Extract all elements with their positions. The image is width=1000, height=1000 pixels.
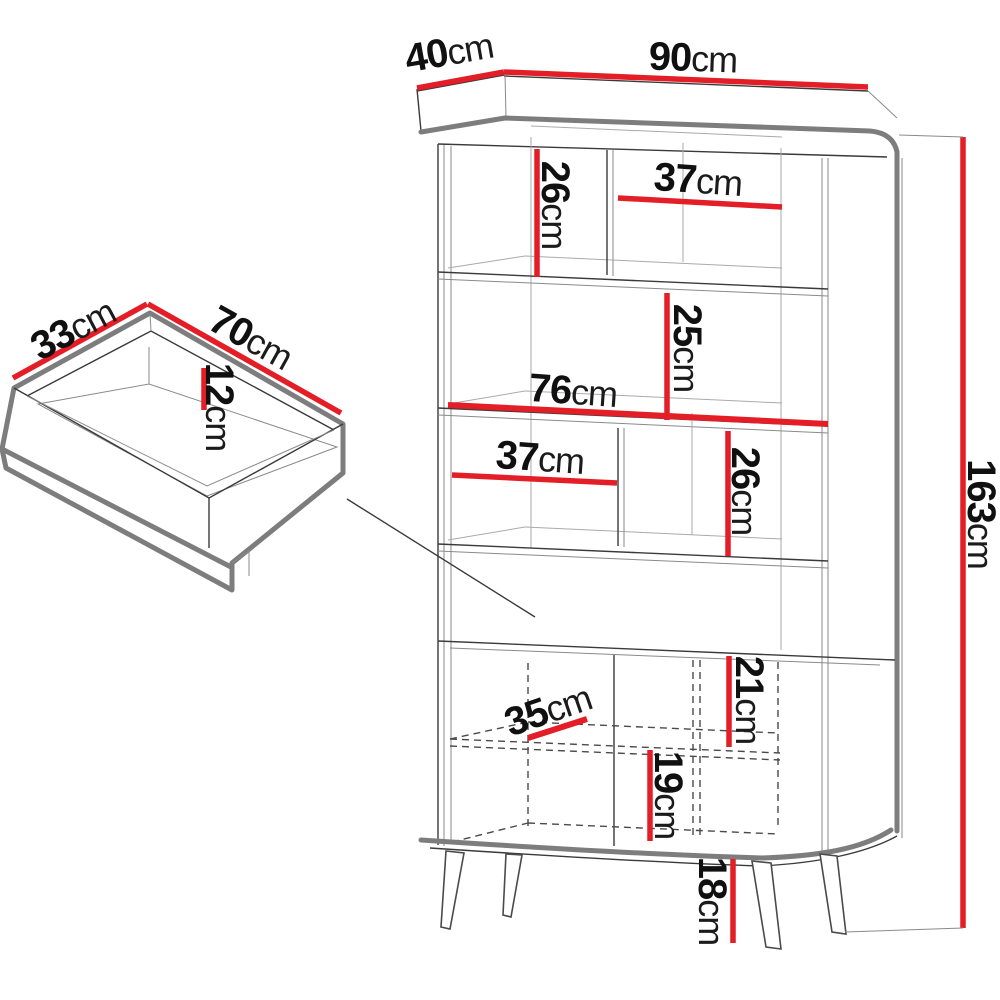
dim-label-90cm: 90cm: [648, 34, 738, 81]
dim-label-26cm-mid: 26cm: [723, 447, 767, 536]
dim-label-163cm: 163cm: [959, 459, 1000, 569]
leg-front-right: [752, 861, 781, 949]
leg-front-left: [441, 851, 464, 929]
dim-label-37cm-top: 37cm: [652, 155, 743, 205]
dim-label-21cm: 21cm: [727, 656, 771, 745]
dim-label-12cm: 12cm: [197, 363, 241, 452]
dim-label-26cm-top: 26cm: [533, 161, 577, 250]
leg-back-left: [503, 854, 522, 917]
furniture-dimension-diagram: 40cm 90cm 163cm 26cm 37cm 25cm 76cm 37cm…: [0, 0, 1000, 1000]
drawer-leader-line: [347, 499, 535, 617]
dim-line-76cm: [448, 405, 828, 424]
dim-label-18cm: 18cm: [690, 857, 734, 946]
dim-label-40cm: 40cm: [402, 23, 497, 82]
legs: [441, 851, 846, 949]
leg-back-right: [820, 854, 846, 934]
dim-label-37cm-mid: 37cm: [494, 433, 585, 483]
dim-label-76cm: 76cm: [527, 366, 618, 416]
top-panel-edge: [421, 118, 897, 152]
dim-label-25cm: 25cm: [665, 304, 709, 393]
dim-label-19cm: 19cm: [646, 751, 690, 840]
diagram-page: 40cm 90cm 163cm 26cm 37cm 25cm 76cm 37cm…: [0, 0, 1000, 1000]
